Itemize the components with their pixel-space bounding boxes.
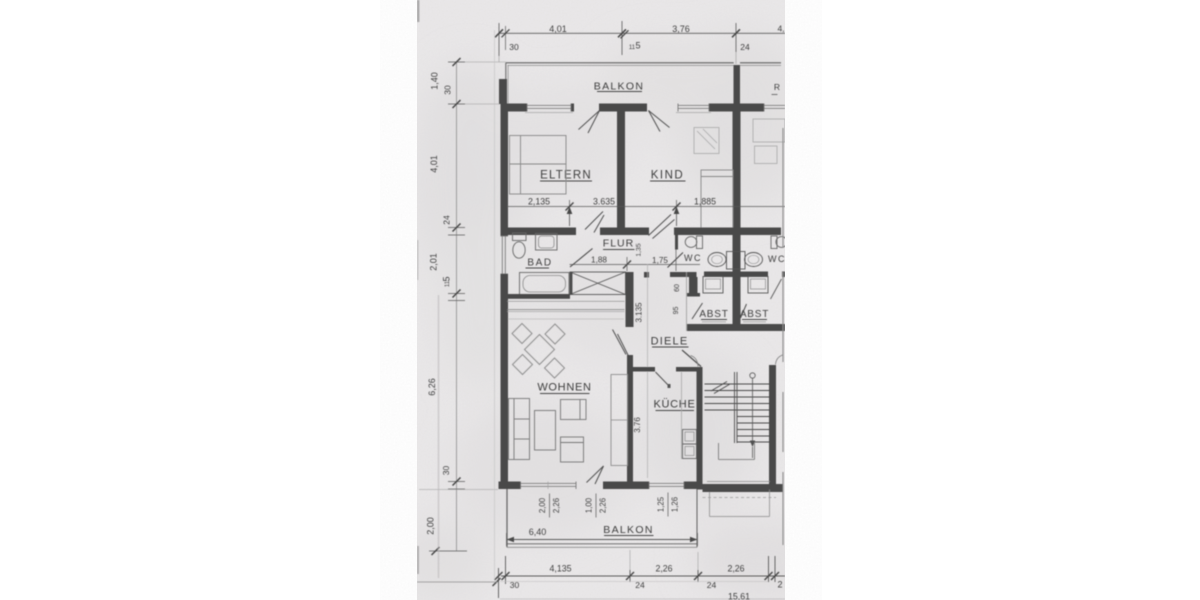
svg-text:KÜCHE: KÜCHE: [653, 399, 695, 411]
svg-text:95: 95: [673, 307, 680, 315]
svg-text:ABST: ABST: [699, 309, 728, 320]
svg-text:3.635: 3.635: [593, 197, 615, 207]
svg-text:60: 60: [674, 284, 681, 292]
svg-text:24: 24: [635, 580, 645, 590]
svg-text:30: 30: [443, 85, 453, 95]
svg-text:R: R: [774, 82, 780, 92]
svg-text:WOHNEN: WOHNEN: [537, 382, 591, 394]
svg-text:4,01: 4,01: [429, 155, 439, 173]
svg-text:1,75: 1,75: [652, 256, 668, 265]
svg-text:15,61: 15,61: [728, 592, 750, 600]
svg-text:4,: 4,: [777, 23, 784, 33]
svg-text:2,26: 2,26: [552, 498, 561, 513]
svg-text:1,88: 1,88: [591, 256, 607, 265]
svg-text:24: 24: [707, 580, 717, 590]
svg-text:2,01: 2,01: [429, 253, 439, 271]
svg-text:2,26: 2,26: [655, 564, 672, 574]
svg-text:3.135: 3.135: [635, 302, 644, 323]
svg-text:4,01: 4,01: [549, 24, 567, 34]
svg-text:30: 30: [441, 466, 451, 476]
svg-text:6,40: 6,40: [529, 527, 547, 537]
svg-text:3.76: 3.76: [633, 417, 642, 433]
svg-text:1,26: 1,26: [671, 497, 680, 512]
svg-text:2,135: 2,135: [528, 197, 550, 207]
svg-text:2,00: 2,00: [426, 517, 436, 535]
svg-text:24: 24: [442, 215, 452, 225]
svg-text:1,25: 1,25: [657, 496, 666, 512]
svg-text:3,76: 3,76: [672, 24, 690, 34]
svg-text:BALKON: BALKON: [594, 81, 644, 93]
svg-text:6,26: 6,26: [427, 378, 437, 396]
svg-text:BALKON: BALKON: [603, 524, 653, 536]
svg-text:5: 5: [635, 41, 640, 51]
svg-text:BAD: BAD: [527, 258, 552, 269]
svg-text:30: 30: [509, 42, 519, 52]
svg-text:4,135: 4,135: [549, 564, 571, 574]
svg-text:1,35: 1,35: [636, 243, 643, 256]
svg-text:WC: WC: [684, 253, 702, 263]
svg-text:FLUR: FLUR: [603, 238, 634, 250]
svg-text:2: 2: [777, 580, 782, 590]
svg-text:24: 24: [740, 42, 750, 52]
svg-text:KIND: KIND: [651, 170, 684, 182]
svg-text:2,00: 2,00: [538, 497, 547, 513]
svg-text:1,885: 1,885: [694, 197, 716, 207]
svg-text:1,00: 1,00: [585, 497, 594, 513]
svg-text:2,26: 2,26: [599, 498, 608, 513]
svg-text:30: 30: [510, 580, 520, 590]
svg-text:2,26: 2,26: [727, 564, 744, 574]
svg-text:ABST: ABST: [740, 309, 769, 320]
svg-text:WC: WC: [768, 254, 786, 264]
svg-text:DIELE: DIELE: [651, 336, 689, 348]
svg-text:5: 5: [442, 276, 452, 281]
svg-text:1,40: 1,40: [430, 72, 440, 90]
